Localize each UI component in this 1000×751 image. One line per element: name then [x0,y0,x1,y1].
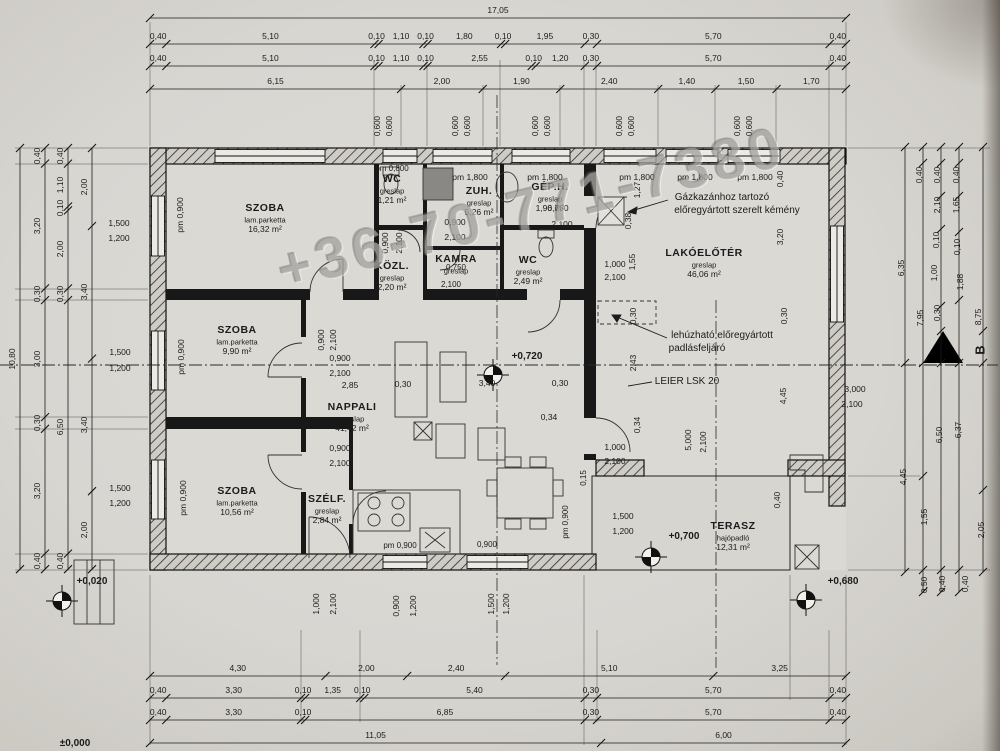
dim-label: 3,30 [225,686,242,695]
dim-label: 0,900 [329,444,350,453]
room-area: 12,31 m² [716,543,750,552]
dim-label: 0,10 [953,239,962,256]
level-label: ±0,000 [60,739,91,749]
dim-label: 1,500 [612,512,633,521]
room-area: 10,56 m² [220,508,254,517]
dim-label: 0,10 [495,32,512,41]
dim-label: 2,00 [80,522,89,539]
dim-label: 3,000 [844,385,865,394]
dim-label: 0,600 [464,116,472,136]
dim-label: 1,65 [952,197,961,214]
room-area: 2,84 m² [313,516,342,525]
room-name: SZOBA [245,203,284,214]
room-floor: greslap [516,268,541,276]
dim-label: 0,40 [830,32,847,41]
dim-label: 6,00 [715,731,732,740]
dim-label: 0,900 [392,595,401,616]
dim-label: 1,70 [803,77,820,86]
dim-label: 0,30 [33,415,42,432]
dim-label: 1,000 [604,260,625,269]
dim-label: 7,95 [916,310,925,327]
dim-label: 0,600 [544,116,552,136]
dim-label: 5,70 [705,686,722,695]
dim-label: 3,40 [80,284,89,301]
dim-label: 1,000 [604,443,625,452]
annotation: előregyártott szerelt kémény [674,206,800,216]
room-area: 1,96 m² [536,204,565,213]
dim-label: 2,00 [56,241,65,258]
dim-label: 0,38 [624,213,633,230]
dim-label: 0,40 [938,576,947,593]
dim-label: 5,10 [601,664,618,673]
dim-label: 0,40 [150,54,167,63]
dim-label: 0,10 [56,200,65,217]
dim-label: 2,00 [434,77,451,86]
dim-label: pm 1,800 [677,173,712,182]
dim-label: 0,600 [734,116,742,136]
dim-label: 0,40 [773,492,782,509]
dim-label: 0,10 [417,32,434,41]
room-name: WC [519,255,538,266]
dim-label: 0,40 [961,576,970,593]
dim-label: 0,900 [381,232,390,253]
dim-label: 0,600 [374,116,382,136]
dim-label: 1,55 [628,254,637,271]
dim-label: 0,40 [915,167,924,184]
dim-label: 0,10 [354,686,371,695]
dim-label: 1,200 [612,527,633,536]
dim-label: 2,100 [841,400,862,409]
dim-label: 0,40 [150,686,167,695]
dim-label: 1,200 [109,364,130,373]
room-floor: greslap [380,187,405,195]
room-floor: greslap [692,261,717,269]
room-area: 46,06 m² [687,270,721,279]
level-label: +0,720 [512,352,543,362]
dim-label: 0,600 [386,116,394,136]
room-floor: greslap [340,415,365,423]
room-name: SZÉLF. [308,494,346,505]
dim-label: 0,10 [417,54,434,63]
dim-label: 1,55 [920,509,929,526]
room-area: 41,42 m² [335,424,369,433]
dim-label: 0,40 [830,708,847,717]
dim-label: 2,100 [329,593,338,614]
dim-label: 2,100 [395,232,404,253]
dim-label: 3,40 [479,379,496,388]
dim-label: 1,000 [312,593,321,614]
dim-label: 0,40 [776,171,785,188]
room-name: SZOBA [217,325,256,336]
room-floor: lam.parketta [216,499,257,507]
dim-label: 0,40 [33,553,42,570]
dim-label: 1,200 [409,595,418,616]
dim-label: pm 0,900 [562,505,570,538]
dim-label: 2,00 [358,664,375,673]
dim-label: 3,20 [33,483,42,500]
dim-label: 6,50 [56,419,65,436]
dim-label: 0,600 [628,116,636,136]
dim-label: 0,30 [933,305,942,322]
dim-label: 2,40 [448,664,465,673]
dim-label: pm 1,800 [452,173,487,182]
room-floor: greslap [444,267,469,275]
dim-label: 2,00 [80,179,89,196]
dim-label: 1,200 [108,234,129,243]
floor-plan-page: 17,050,405,100,101,100,101,800,101,950,3… [0,0,1000,751]
dim-label: pm 1,800 [619,173,654,182]
room-area: 5,26 m² [465,208,494,217]
dim-label: pm 0,900 [179,480,188,515]
level-label: +0,700 [669,532,700,542]
level-label: +0,680 [828,577,859,587]
dim-label: 5,000 [684,429,693,450]
annotation: lehúzható előregyártott [671,331,773,341]
dim-label: 2,100 [329,369,350,378]
dim-label: 0,40 [830,54,847,63]
dim-label: 1,27 [633,182,642,199]
dim-label: 0,34 [541,413,558,422]
dim-label: 0,900 [317,329,326,350]
dim-label: 0,34 [633,417,642,434]
dim-label: 0,900 [477,541,497,549]
dim-label: 0,40 [933,167,942,184]
dim-label: 1,95 [537,32,554,41]
dim-label: 1,80 [456,32,473,41]
room-area: 1,21 m² [378,196,407,205]
dim-label: 1,10 [393,32,410,41]
dim-label: 2,100 [441,281,461,289]
dim-label: 5,70 [705,32,722,41]
dim-label: 1,10 [393,54,410,63]
dim-label: 0,50 [920,577,929,594]
room-name: KÖZL. [375,261,409,272]
dim-label: 2,100 [604,273,625,282]
level-label: +0,020 [77,577,108,587]
dim-label: 0,10 [525,54,542,63]
room-name: ZUH. [466,186,493,197]
annotation: Gázkazánhoz tartozó [675,193,770,203]
room-floor: greslap [467,199,492,207]
dim-label: 0,30 [33,286,42,303]
dim-label: 0,30 [552,379,569,388]
dim-label: 4,45 [899,469,908,486]
dim-label: 1,10 [56,177,65,194]
dim-label: 4,30 [229,664,246,673]
dim-label: 0,40 [952,167,961,184]
dim-label: 6,85 [437,708,454,717]
dim-label: 1,40 [679,77,696,86]
dim-label: 0,30 [583,32,600,41]
dim-label: 0,10 [295,686,312,695]
dim-label: 0,30 [583,708,600,717]
dim-label: 5,40 [466,686,483,695]
dim-label: 6,50 [935,427,944,444]
dim-label: 6,35 [897,260,906,277]
room-floor: greslap [380,274,405,282]
dim-label: 1,50 [738,77,755,86]
dim-label: 6,15 [267,77,284,86]
dim-label: 2,100 [604,457,625,466]
dim-label: 0,15 [580,470,588,486]
dim-label: 3,25 [771,664,788,673]
dim-label: 1,88 [956,274,965,291]
label-layer: 17,050,405,100,101,100,101,800,101,950,3… [0,0,1000,751]
dim-label: 2,40 [601,77,618,86]
dim-label: 2,100 [329,329,338,350]
room-floor: lam.parketta [244,216,285,224]
room-name: TERASZ [711,521,756,532]
dim-label: 1,35 [324,686,341,695]
dim-label: 0,40 [150,708,167,717]
dim-label: 1,500 [487,593,496,614]
dim-label: 5,70 [705,54,722,63]
dim-label: 3,30 [225,708,242,717]
room-floor: greslap [315,507,340,515]
dim-label: 4,45 [779,388,788,405]
dim-label: 1,90 [513,77,530,86]
dim-label: 1,20 [552,54,569,63]
photo-edge-shadow [982,0,1000,751]
dim-label: 0,40 [830,686,847,695]
dim-label: pm 1,800 [737,173,772,182]
dim-label: 1,200 [502,593,511,614]
dim-label: 2,10 [933,197,942,214]
dim-label: pm 0,900 [177,339,186,374]
dim-label: 0,10 [368,54,385,63]
dim-label: 1,500 [109,484,130,493]
room-area: 16,32 m² [248,225,282,234]
dim-label: 0,10 [368,32,385,41]
dim-label: 0,900 [444,218,465,227]
annotation: LEIER LSK 20 [655,377,719,387]
dim-label: 5,70 [705,708,722,717]
room-name: LAKÓELŐTÉR [665,248,742,259]
dim-label: 0,10 [932,232,941,249]
room-floor: greslap [538,195,563,203]
dim-label: 0,30 [583,686,600,695]
dim-label: 17,05 [487,6,508,15]
dim-label: 3,20 [33,218,42,235]
dim-label: 2,100 [551,220,572,229]
room-name: NAPPALI [328,402,377,413]
dim-label: 11,05 [365,731,386,740]
dim-label: 2,55 [471,54,488,63]
room-name: WC [383,174,402,185]
dim-label: 0,30 [395,380,412,389]
dim-label: 0,30 [780,308,789,325]
annotation: padlásfeljáró [669,344,726,354]
dim-label: 0,600 [616,116,624,136]
dim-label: 0,30 [583,54,600,63]
room-floor: hajópadló [717,534,750,542]
dim-label: 2,85 [342,381,359,390]
room-area: 2,20 m² [378,283,407,292]
dim-label: 3,00 [33,350,42,367]
dim-label: 0,900 [329,354,350,363]
dim-label: 0,40 [150,32,167,41]
dim-label: 0,600 [452,116,460,136]
dim-label: 10,80 [8,348,17,369]
room-name: GÉP.H. [531,182,568,193]
room-floor: lam.parketta [216,338,257,346]
dim-label: 0,40 [33,148,42,165]
dim-label: 0,600 [746,116,754,136]
dim-label: 2,100 [329,459,350,468]
dim-label: pm 0,900 [176,197,185,232]
room-area: 2,49 m² [514,277,543,286]
dim-label: 5,10 [262,54,279,63]
room-area: 9,90 m² [223,347,252,356]
room-name: KAMRA [435,254,477,265]
dim-label: pm 0,900 [383,542,416,550]
dim-label: 3,40 [80,417,89,434]
dim-label: 0,40 [56,148,65,165]
dim-label: 3,20 [776,229,785,246]
dim-label: 1,500 [108,219,129,228]
dim-label: 6,37 [954,422,963,439]
dim-label: 0,40 [56,553,65,570]
dim-label: 0,600 [532,116,540,136]
dim-label: 0,30 [56,286,65,303]
dim-label: 5,10 [262,32,279,41]
dim-label: 0,10 [295,708,312,717]
dim-label: 1,200 [109,499,130,508]
room-name: SZOBA [217,486,256,497]
dim-label: 2,100 [699,431,708,452]
dim-label: 0,30 [629,308,638,325]
dim-label: 2,100 [444,233,465,242]
dim-label: 8,75 [974,309,983,326]
dim-label: 2,43 [629,355,638,372]
dim-label: 1,500 [109,348,130,357]
dim-label: 1,00 [930,265,939,282]
